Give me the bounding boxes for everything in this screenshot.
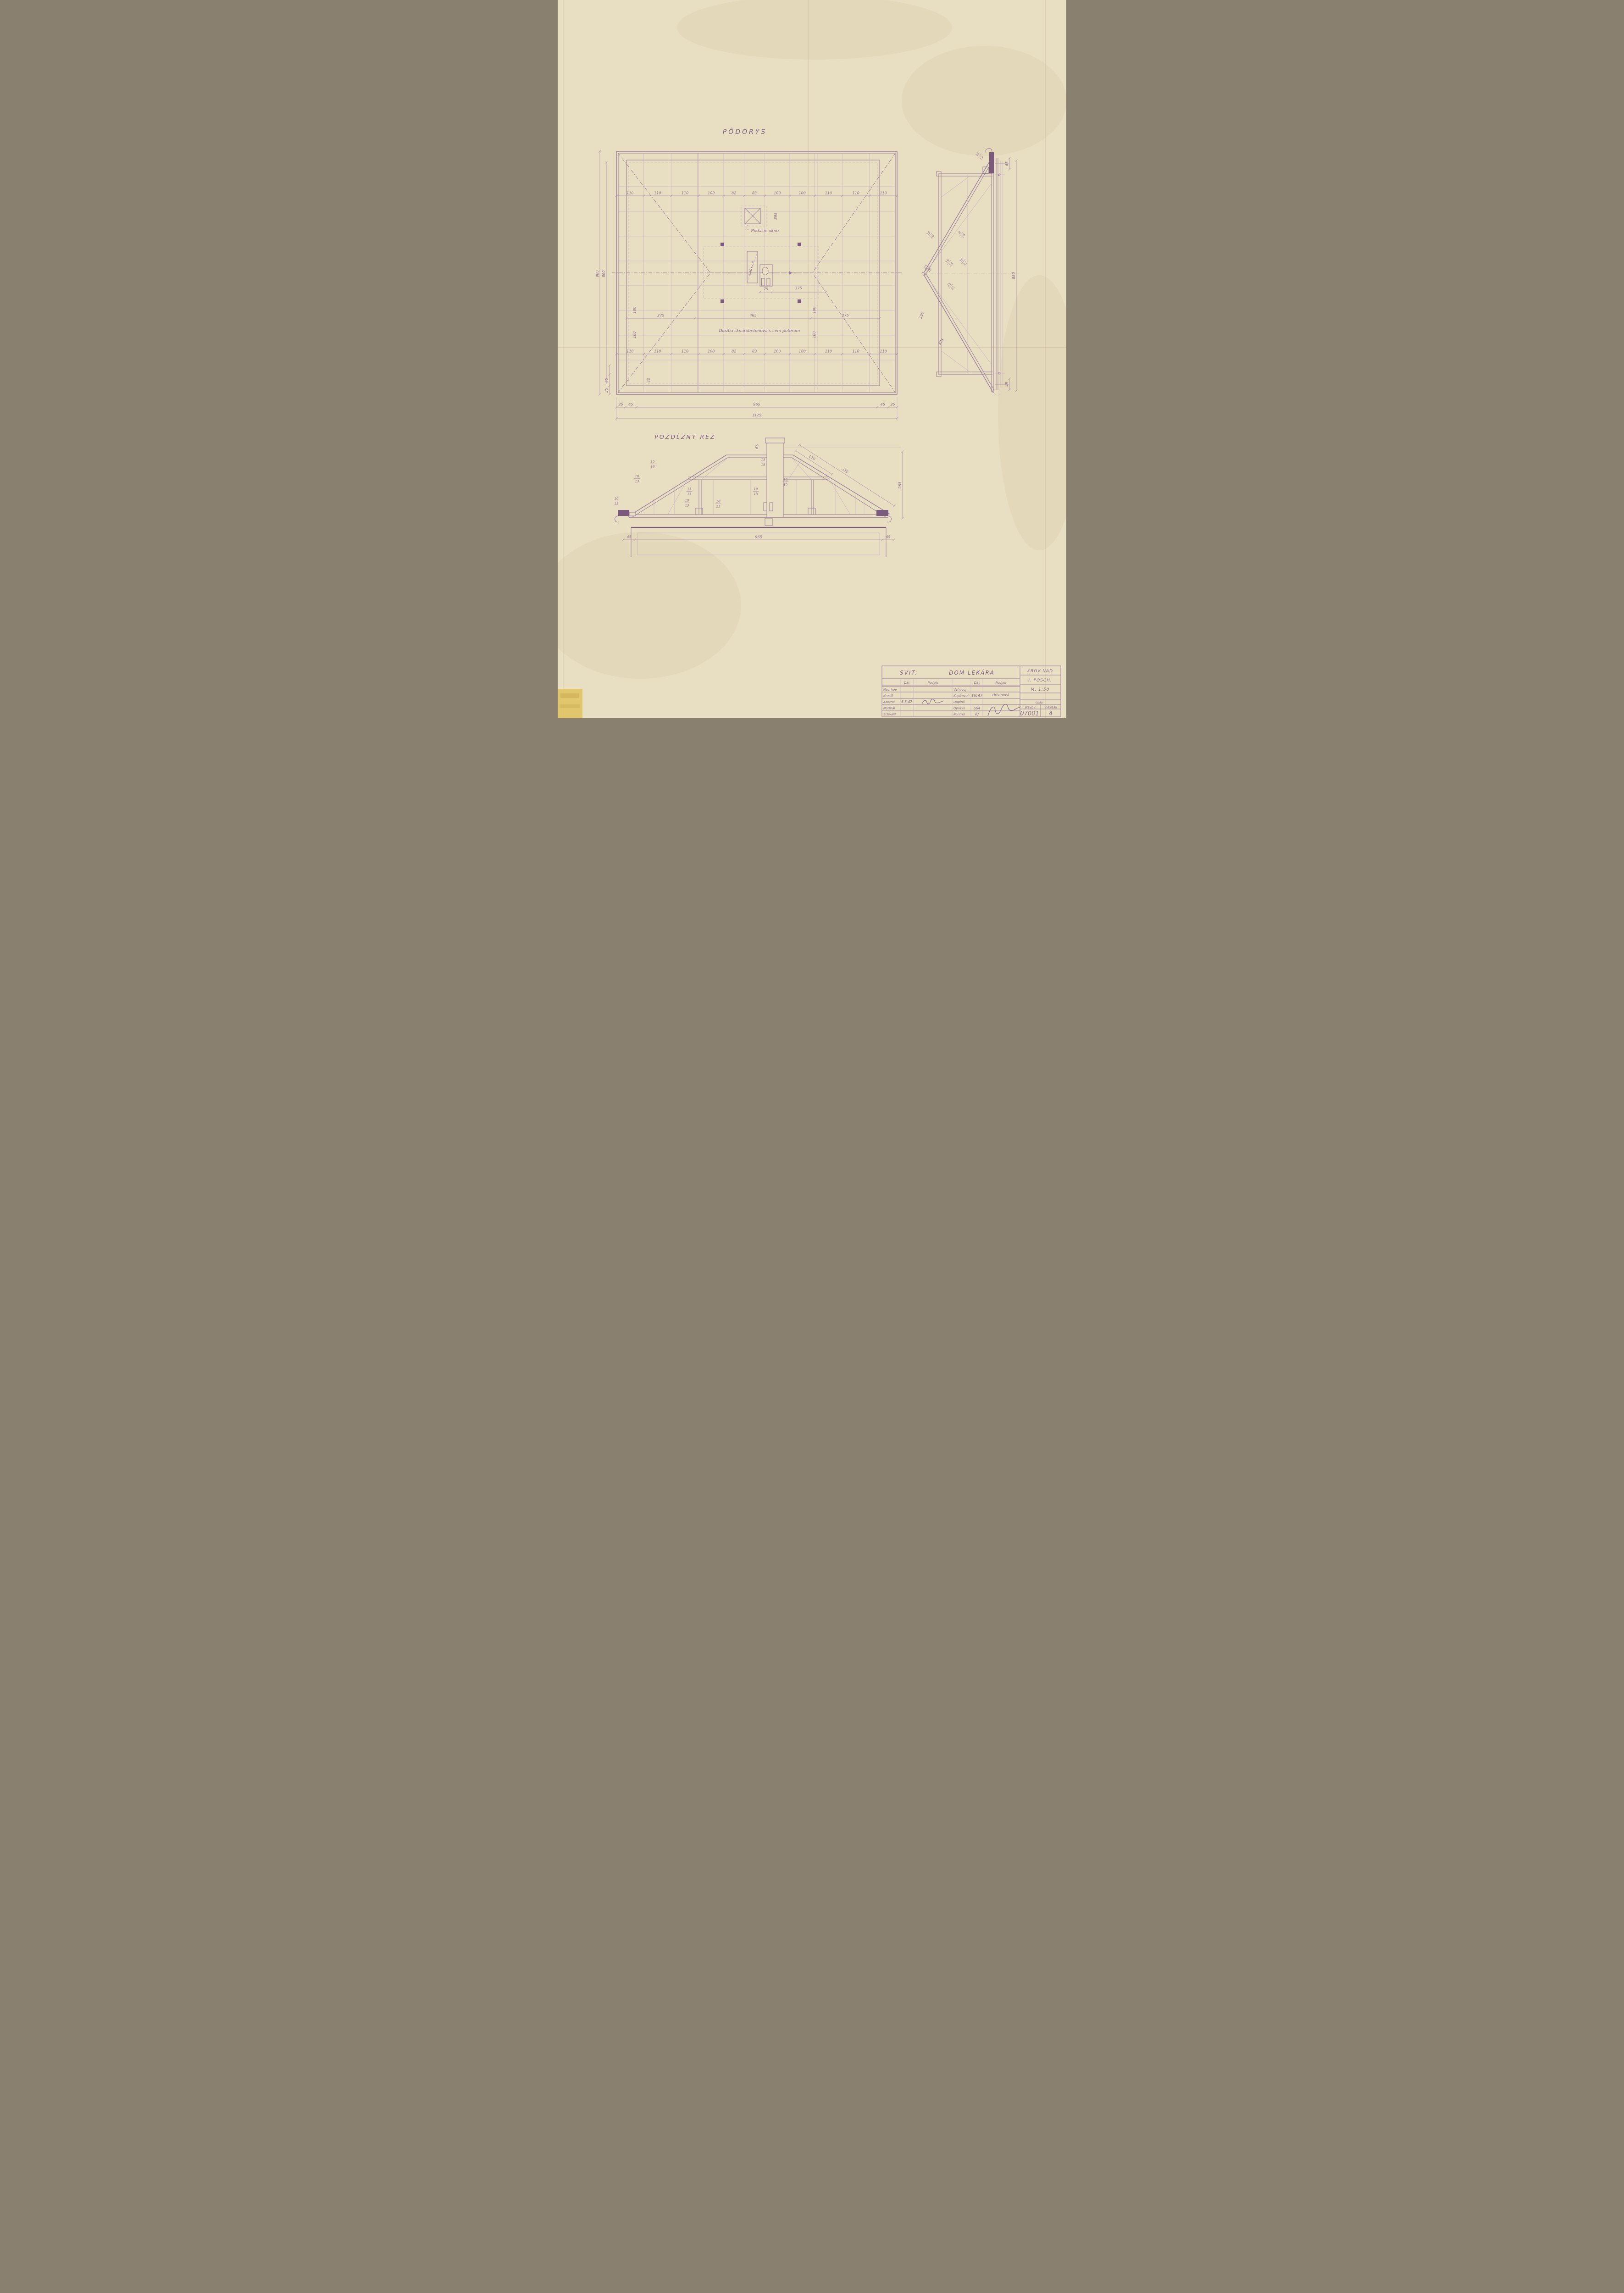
entry-kontrol2-num: 47 bbox=[975, 713, 979, 717]
num-col-stavby: stavby bbox=[1025, 706, 1036, 709]
entry-opravil-num: 664 bbox=[974, 706, 981, 710]
fraction-numerator: 15 bbox=[687, 487, 692, 491]
row-label-kreslil: Kreslil bbox=[883, 694, 893, 698]
dimension-label: 82 bbox=[732, 191, 736, 195]
row-label-kontrol2: Kontrol bbox=[953, 713, 965, 716]
fraction-numerator: 10 bbox=[615, 497, 619, 501]
drawing-number: 4 bbox=[1049, 710, 1053, 717]
dimension-label: 965 bbox=[753, 403, 760, 407]
dimension-label: 110 bbox=[880, 191, 887, 195]
spacing-100: 100 bbox=[632, 306, 637, 313]
spacing-100: 100 bbox=[812, 331, 816, 338]
fraction-denominator: 13 bbox=[615, 502, 619, 506]
fraction-denominator: 15 bbox=[784, 483, 788, 487]
col-date-2: Dát bbox=[974, 681, 980, 685]
chimney-top-dim: 65 bbox=[754, 444, 759, 449]
dimension-label: 275 bbox=[657, 314, 664, 318]
fraction-numerator: 10 bbox=[635, 475, 639, 478]
entry-kontrol-date: 6.3.47 bbox=[901, 700, 912, 704]
project-title: DOM LEKÁRA bbox=[949, 669, 995, 676]
post-marker bbox=[721, 299, 724, 303]
post-marker bbox=[798, 299, 801, 303]
side-dim-45-top: 45 bbox=[1005, 161, 1009, 166]
dim-375: 375 bbox=[795, 286, 802, 290]
dimension-label: 110 bbox=[853, 191, 859, 195]
building-number: 07001 bbox=[1020, 710, 1039, 717]
fraction-numerator: 18 bbox=[716, 500, 721, 504]
dimension-label: 100 bbox=[799, 191, 806, 195]
dimension-label: 35 bbox=[890, 403, 895, 407]
blueprint-drawing: PÔDORYS P bbox=[558, 0, 1066, 718]
num-col-vykresu: výkresu bbox=[1044, 706, 1057, 709]
fraction-denominator: 18 bbox=[761, 463, 765, 467]
row-label-opravil: Opravil bbox=[953, 707, 965, 710]
dimension-label: 110 bbox=[825, 349, 832, 354]
dimension-label: 82 bbox=[732, 349, 736, 354]
dim-395: 395 bbox=[774, 212, 778, 219]
drawing-title-2: I. POSCH. bbox=[1028, 678, 1052, 683]
col-sign-2: Podpis bbox=[996, 681, 1006, 685]
dimension-label: 45 bbox=[886, 535, 890, 539]
fraction-numerator: 15 bbox=[761, 458, 765, 462]
dimension-label: 83 bbox=[752, 349, 757, 354]
fraction-denominator: 13 bbox=[754, 493, 758, 496]
trap-window-label: Podacie okno bbox=[751, 229, 779, 233]
side-dim-45-bottom: 45 bbox=[1005, 382, 1009, 387]
blueprint-sheet: PÔDORYS P bbox=[558, 0, 1066, 718]
chimney-width-dim: 75 bbox=[764, 287, 768, 291]
height-outer-label: 980 bbox=[595, 270, 599, 277]
row-label-navrhov: Navrhov bbox=[883, 688, 897, 692]
entry-kopiroval-sign: Urbanová bbox=[992, 693, 1009, 697]
dimension-label: 45 bbox=[881, 403, 885, 407]
dimension-label: 100 bbox=[708, 191, 715, 195]
fraction-denominator: 15 bbox=[687, 493, 692, 496]
dimension-label: 110 bbox=[654, 191, 661, 195]
dimension-label: 100 bbox=[799, 349, 806, 354]
dimension-label: 45 bbox=[626, 535, 631, 539]
spacing-100: 100 bbox=[812, 306, 816, 313]
post-marker bbox=[721, 243, 724, 246]
dimension-label: 35 bbox=[618, 403, 623, 407]
fraction-numerator: 15 bbox=[651, 460, 655, 464]
location-label: SVIT: bbox=[900, 670, 918, 676]
fraction-denominator: 13 bbox=[635, 480, 639, 483]
row-label-doplnil: Doplnil bbox=[953, 700, 964, 704]
dimension-label: 100 bbox=[774, 191, 781, 195]
drawing-title-1: KROV NAD bbox=[1027, 669, 1053, 674]
corner-dim-35: 35 bbox=[604, 388, 609, 393]
dimension-label: 110 bbox=[880, 349, 887, 354]
dimension-label: 110 bbox=[682, 349, 688, 354]
dimension-label: 100 bbox=[774, 349, 781, 354]
row-label-schvalil: Schválil bbox=[883, 713, 896, 716]
dimension-label: 110 bbox=[654, 349, 661, 354]
dimension-label: 110 bbox=[626, 349, 633, 354]
row-label-kontrol: Kontrol bbox=[883, 700, 895, 704]
fraction-numerator: 10 bbox=[754, 487, 758, 491]
scale-label: M. 1:50 bbox=[1031, 687, 1050, 692]
dimension-label: 110 bbox=[853, 349, 859, 354]
dimension-label: 110 bbox=[825, 191, 832, 195]
fraction-numerator: 15 bbox=[784, 478, 788, 482]
paper-background bbox=[558, 0, 1066, 718]
dimension-label: 275 bbox=[842, 314, 849, 318]
dimension-label: 965 bbox=[755, 535, 762, 539]
spacing-100: 100 bbox=[632, 331, 637, 338]
corner-dim-45: 45 bbox=[604, 378, 609, 382]
height-dim-265: 265 bbox=[898, 482, 902, 488]
total-width-label: 1125 bbox=[752, 413, 761, 417]
fraction-denominator: 21 bbox=[716, 505, 721, 509]
post-marker bbox=[798, 243, 801, 246]
col-sign-1: Podpis bbox=[928, 681, 938, 685]
row-label-vyhovuj: Vyhovuj bbox=[953, 688, 966, 692]
fraction-denominator: 18 bbox=[651, 465, 655, 469]
fraction-denominator: 13 bbox=[685, 504, 689, 508]
dimension-label: 110 bbox=[626, 191, 633, 195]
row-label-kopiroval: Kopíroval: bbox=[953, 694, 970, 698]
tape-streak bbox=[560, 704, 580, 708]
dimension-label: 45 bbox=[628, 403, 633, 407]
col-date-1: Dát bbox=[904, 681, 910, 685]
dim-40: 40 bbox=[647, 378, 651, 382]
dimension-label: 83 bbox=[752, 191, 757, 195]
plan-title: PÔDORYS bbox=[723, 127, 767, 136]
row-label-normal: Normál bbox=[883, 707, 895, 710]
yellow-tape-patch bbox=[558, 689, 582, 718]
floor-note: Dlažba škvárobetonová s cem poterom bbox=[719, 328, 800, 333]
tape-streak bbox=[560, 693, 579, 698]
dimension-label: 110 bbox=[682, 191, 688, 195]
height-inner-label: 890 bbox=[602, 270, 606, 277]
num-header: číslo bbox=[1036, 701, 1043, 704]
entry-kopiroval-num: 16147 bbox=[971, 694, 982, 698]
section-title: POZDĹŽNY REZ bbox=[654, 433, 715, 440]
dimension-label: 100 bbox=[708, 349, 715, 354]
fraction-numerator: 10 bbox=[685, 499, 689, 503]
side-height-dim: 880 bbox=[1012, 272, 1016, 279]
dimension-label: 465 bbox=[749, 314, 756, 318]
